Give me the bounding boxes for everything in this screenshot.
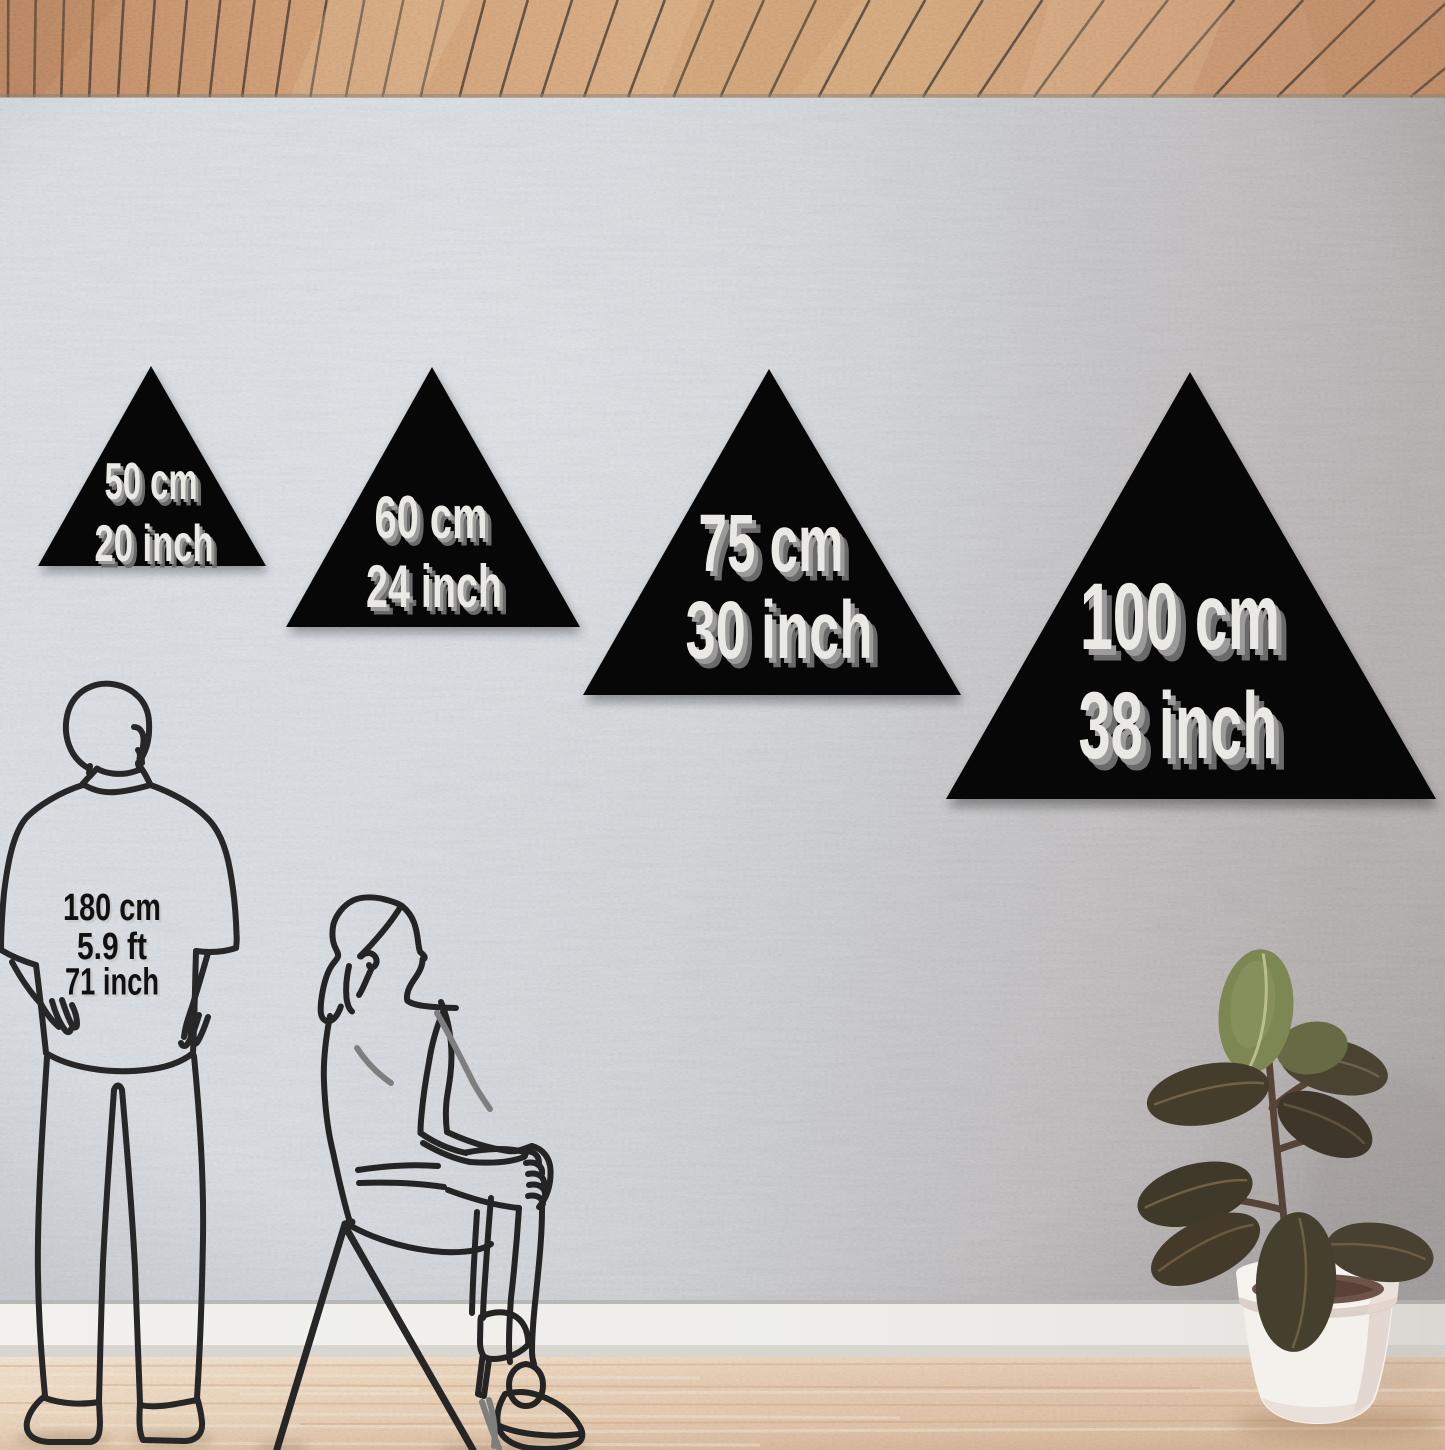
svg-text:71 inch: 71 inch <box>65 962 159 1004</box>
svg-text:50 cm: 50 cm <box>105 453 198 511</box>
svg-text:30 inch: 30 inch <box>686 585 873 676</box>
svg-text:20 inch: 20 inch <box>95 515 214 573</box>
svg-text:180 cm: 180 cm <box>63 887 161 929</box>
svg-text:60 cm: 60 cm <box>375 484 488 551</box>
svg-text:38 inch: 38 inch <box>1079 673 1278 779</box>
svg-text:100 cm: 100 cm <box>1080 564 1280 670</box>
svg-text:75 cm: 75 cm <box>699 498 844 589</box>
svg-text:24 inch: 24 inch <box>366 553 502 620</box>
